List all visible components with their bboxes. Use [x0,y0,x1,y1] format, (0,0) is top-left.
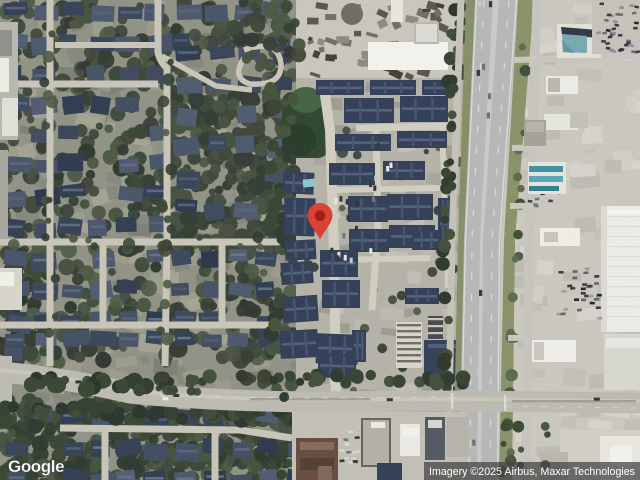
svg-text:Imagery ©2025 Airbus, Maxar Te: Imagery ©2025 Airbus, Maxar Technologies [429,466,635,478]
svg-text:Google: Google [8,457,64,476]
